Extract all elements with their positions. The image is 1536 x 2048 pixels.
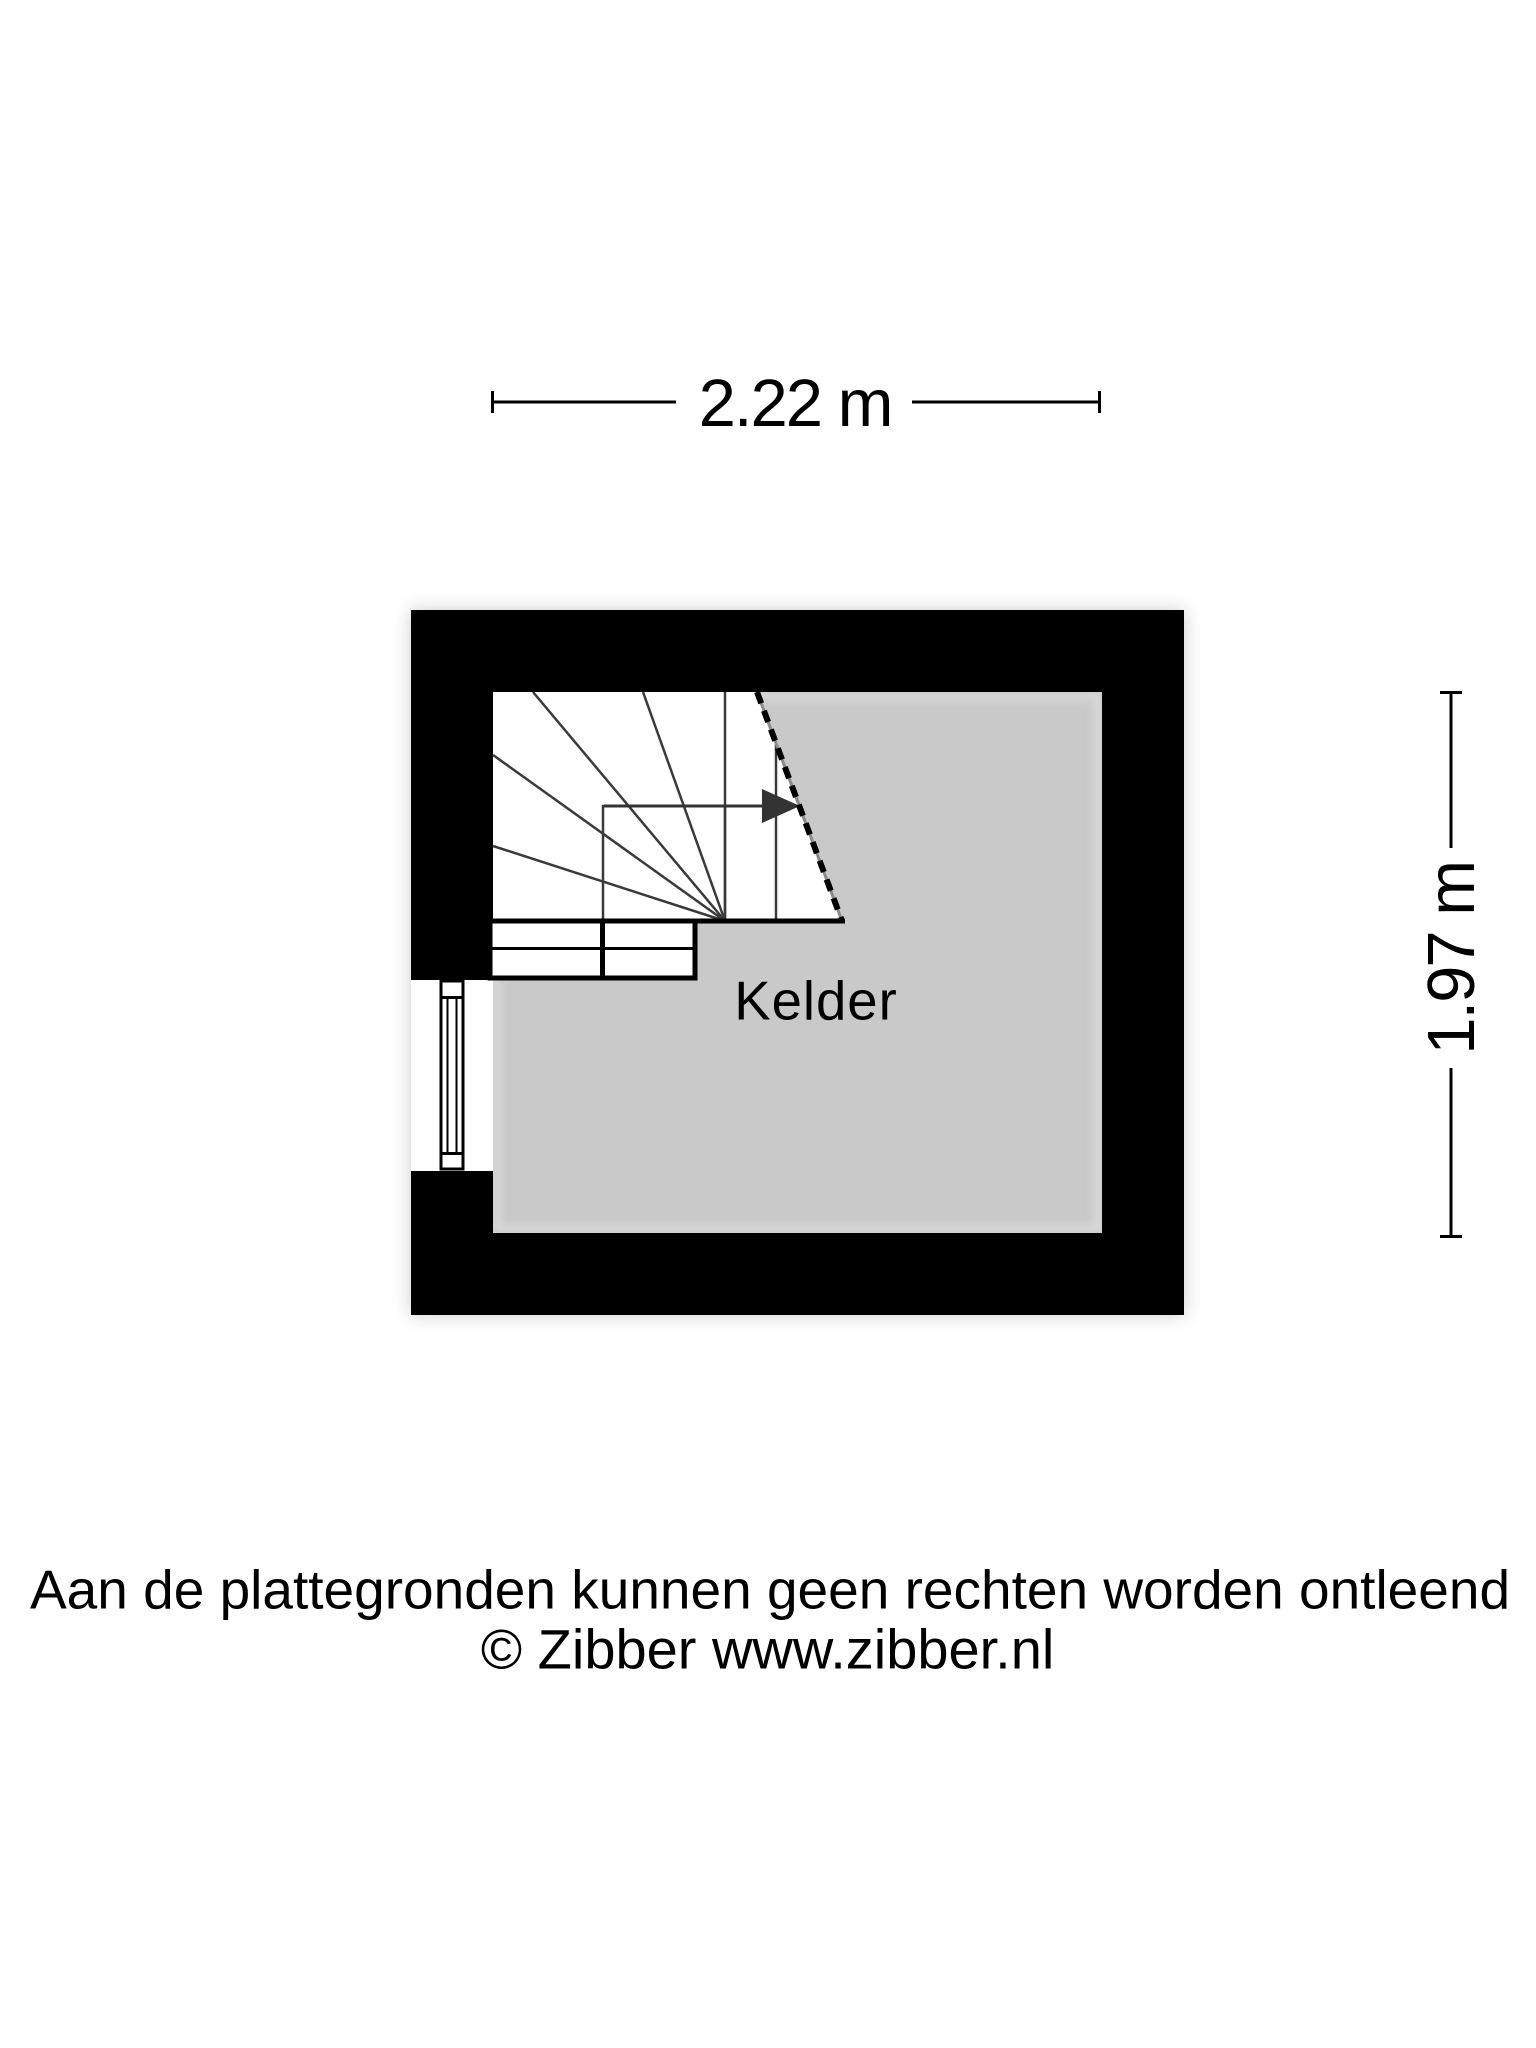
svg-text:Kelder: Kelder [734, 970, 898, 1031]
svg-text:Aan de plattegronden kunnen ge: Aan de plattegronden kunnen geen rechten… [30, 1558, 1510, 1620]
svg-text:© Zibber www.zibber.nl: © Zibber www.zibber.nl [481, 1618, 1054, 1681]
svg-text:2.22 m: 2.22 m [699, 366, 892, 441]
svg-text:1.97 m: 1.97 m [1414, 862, 1489, 1055]
